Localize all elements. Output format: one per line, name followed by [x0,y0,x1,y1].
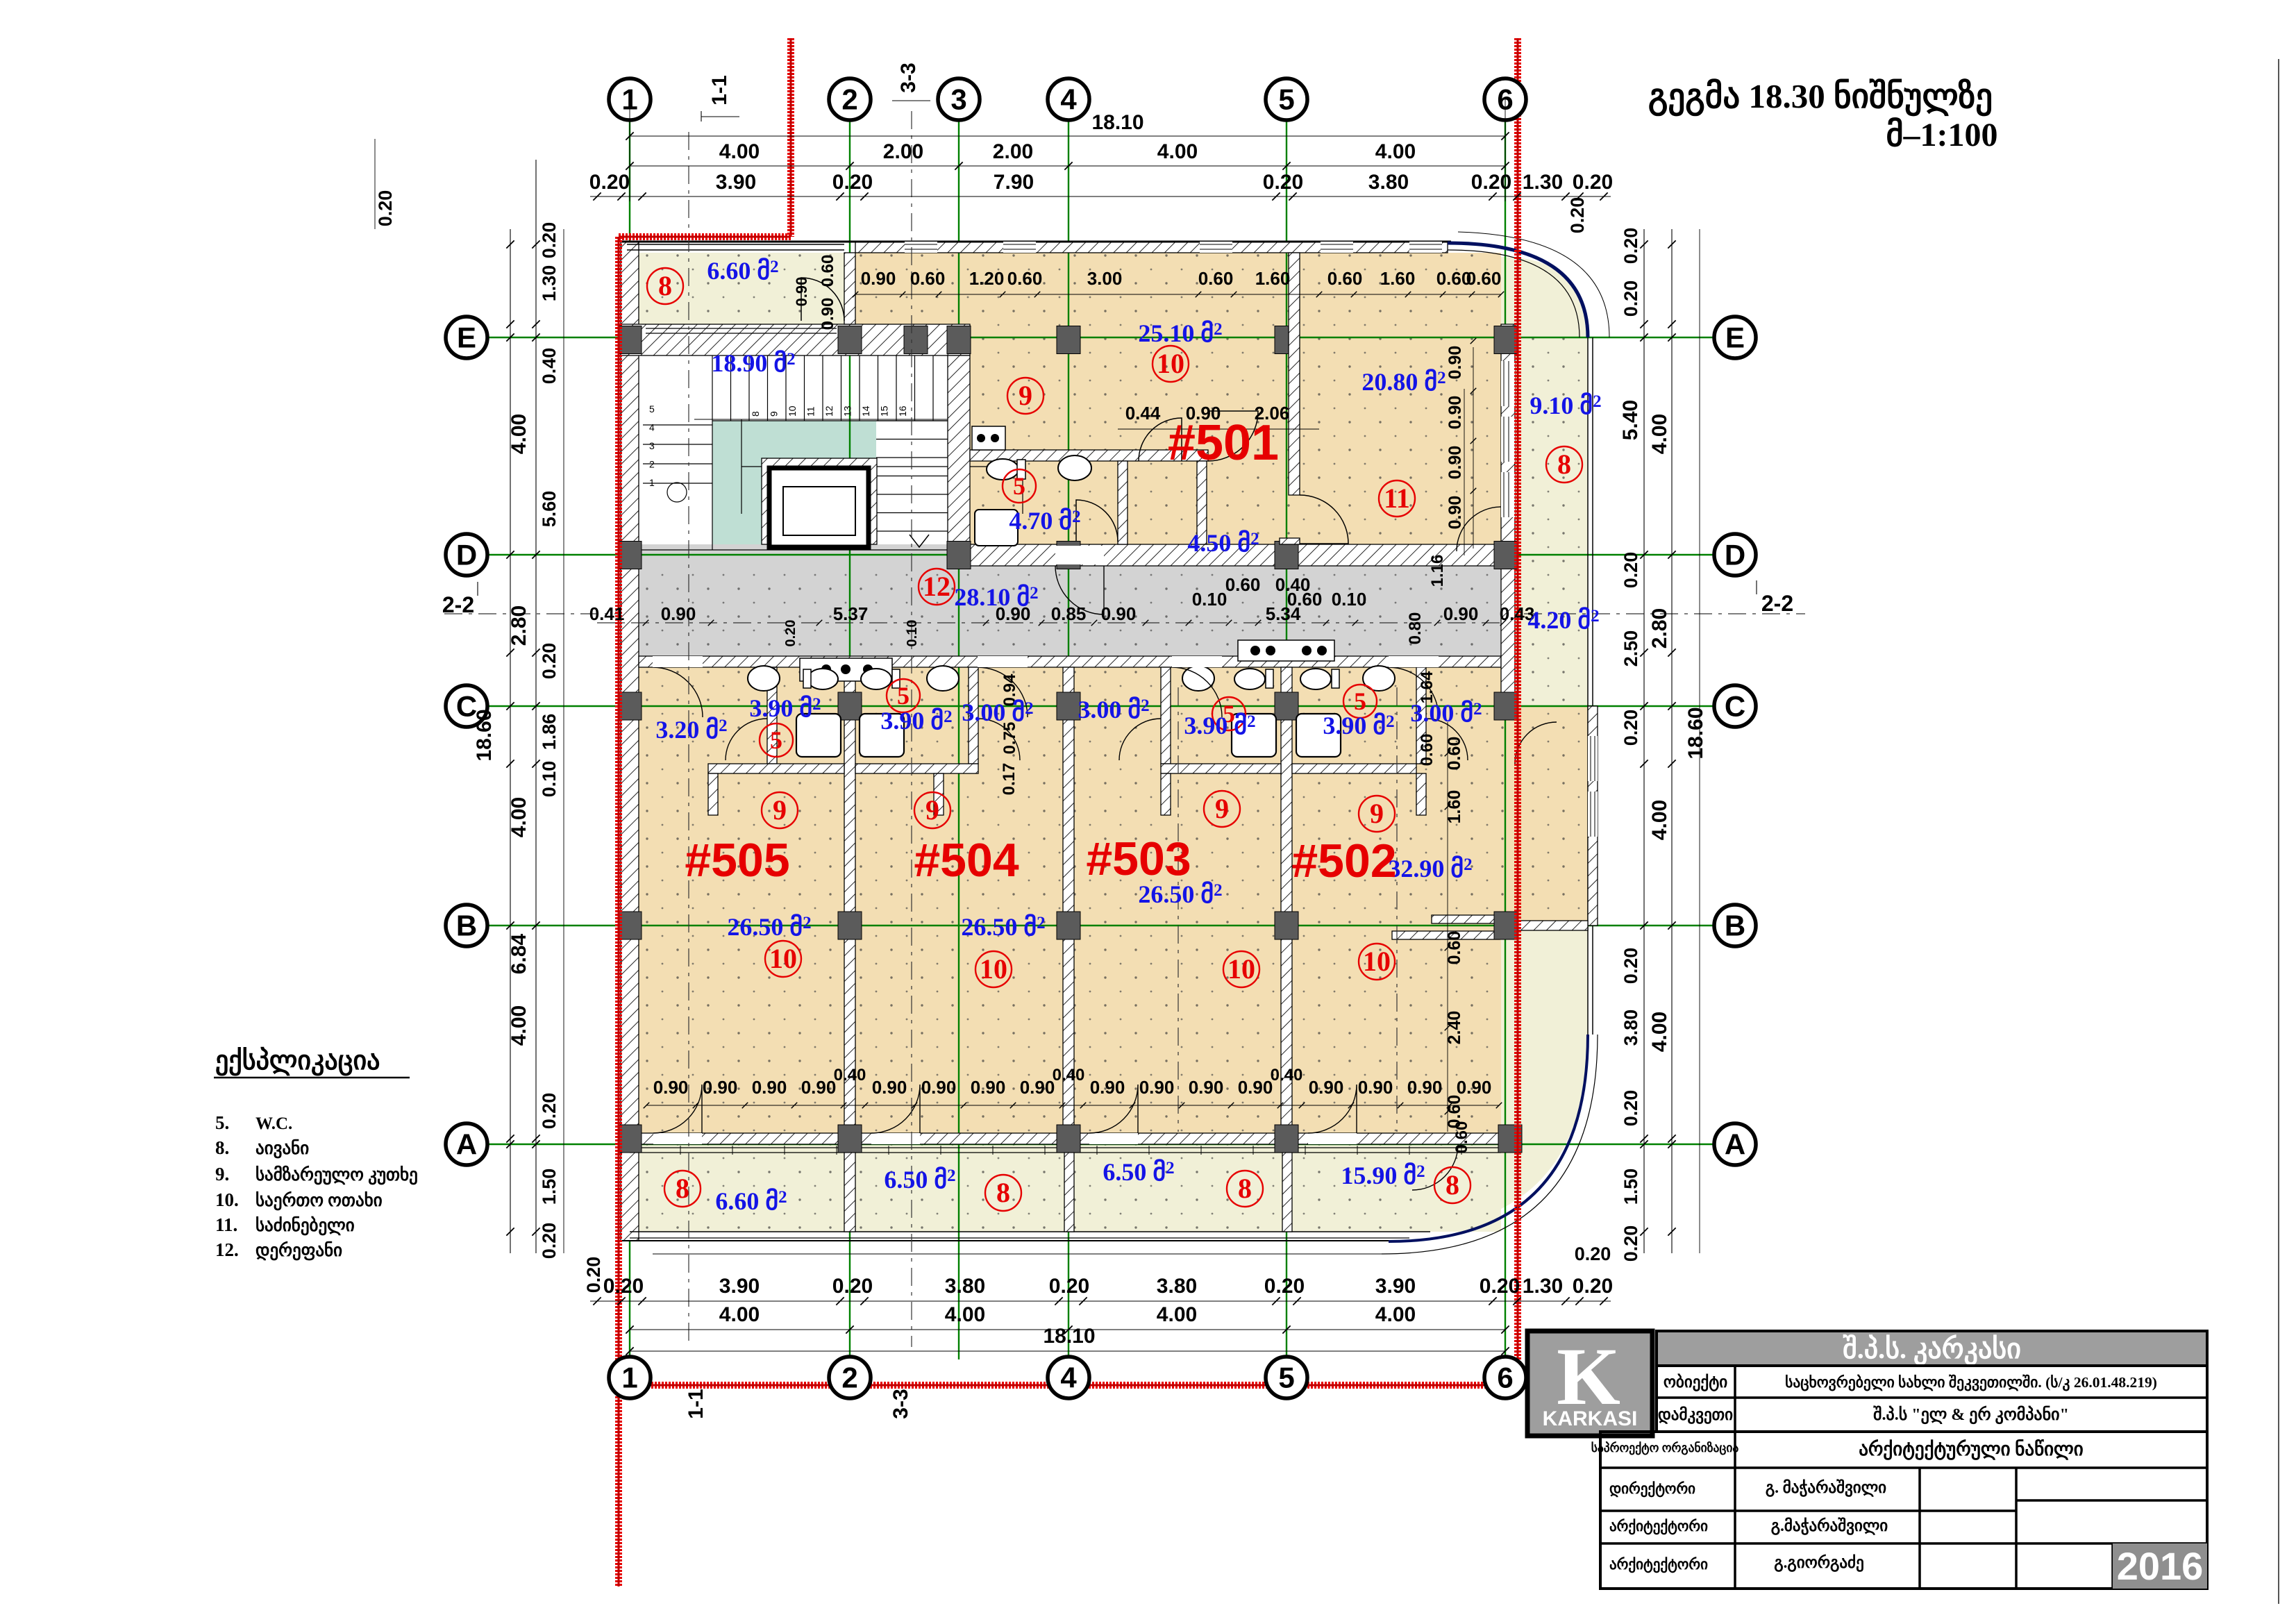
svg-text:9: 9 [1019,380,1032,411]
svg-text:3.80: 3.80 [1157,1275,1197,1298]
svg-text:9: 9 [769,411,780,417]
svg-text:0.90: 0.90 [661,603,696,624]
svg-text:0.40: 0.40 [1271,1066,1303,1085]
svg-text:4.00: 4.00 [1375,1303,1416,1326]
svg-text:0.90: 0.90 [1309,1077,1344,1098]
svg-text:3.00 მ2: 3.00 მ2 [1410,699,1482,727]
svg-text:#501: #501 [1168,415,1279,471]
svg-text:0.60: 0.60 [1225,574,1261,595]
svg-text:0.90: 0.90 [1446,346,1465,380]
svg-text:1.20: 1.20 [969,268,1005,289]
svg-text:საძინებელი: საძინებელი [255,1216,355,1236]
svg-text:18.60: 18.60 [1684,707,1707,759]
svg-text:#502: #502 [1291,835,1396,887]
svg-text:0.90: 0.90 [653,1077,689,1098]
svg-text:დირექტორი: დირექტორი [1609,1480,1695,1498]
svg-text:E: E [1725,321,1745,354]
svg-text:0.90: 0.90 [1446,396,1465,430]
svg-text:C: C [1725,690,1745,723]
svg-text:5: 5 [897,682,910,710]
svg-text:1: 1 [649,477,655,488]
svg-text:B: B [456,910,477,942]
svg-text:9: 9 [1215,793,1229,824]
svg-text:16: 16 [897,405,908,417]
svg-text:15.90 მ2: 15.90 მ2 [1341,1162,1425,1189]
svg-text:2-2: 2-2 [442,592,474,617]
svg-text:0.90: 0.90 [1238,1077,1273,1098]
svg-text:10: 10 [1157,348,1184,379]
svg-text:2: 2 [841,83,857,116]
svg-text:შ.პ.ს "ელ & ერ კომპანი": შ.პ.ს "ელ & ერ კომპანი" [1873,1405,2069,1425]
svg-text:1.86: 1.86 [539,714,560,751]
svg-text:3.90: 3.90 [716,171,756,194]
svg-text:დერეფანი: დერეფანი [255,1241,342,1261]
svg-text:10: 10 [1227,953,1255,985]
svg-text:9: 9 [1370,798,1384,829]
svg-text:0.20: 0.20 [1620,1225,1641,1262]
svg-text:0.60: 0.60 [1007,268,1043,289]
svg-text:10: 10 [787,405,798,417]
svg-text:12: 12 [923,571,950,602]
svg-text:0.44: 0.44 [1125,403,1161,424]
svg-text:0.20: 0.20 [1575,1244,1611,1264]
svg-text:0.20: 0.20 [603,1275,644,1298]
svg-text:5: 5 [1278,1362,1294,1394]
svg-text:0.90: 0.90 [793,277,810,307]
svg-text:0.90: 0.90 [1090,1077,1125,1098]
svg-text:KARKASI: KARKASI [1543,1407,1638,1430]
svg-text:5: 5 [1354,687,1366,715]
svg-text:7.90: 7.90 [994,171,1034,194]
svg-text:8: 8 [1238,1173,1252,1204]
svg-text:11: 11 [1384,483,1410,514]
svg-text:0.90: 0.90 [971,1077,1006,1098]
svg-text:საცხოვრებელი სახლი შეკვეთილში.: საცხოვრებელი სახლი შეკვეთილში. (ს/კ 26.0… [1785,1374,2157,1391]
svg-text:6.50 მ2: 6.50 მ2 [1103,1158,1174,1186]
svg-text:10: 10 [769,943,797,974]
svg-text:13: 13 [842,405,853,417]
svg-text:20.80 მ2: 20.80 მ2 [1361,368,1446,396]
svg-text:5: 5 [1013,472,1025,500]
svg-text:4: 4 [1060,83,1077,116]
svg-text:0.90: 0.90 [1358,1077,1393,1098]
svg-text:15: 15 [879,405,890,417]
svg-text:0.90: 0.90 [1457,1077,1492,1098]
svg-text:12: 12 [823,405,835,417]
svg-text:0.90: 0.90 [1446,446,1465,480]
svg-text:0.90: 0.90 [752,1077,787,1098]
svg-text:0.90: 0.90 [1407,1077,1443,1098]
svg-text:0.90: 0.90 [1101,603,1137,624]
svg-text:3.20 მ2: 3.20 მ2 [655,716,727,744]
svg-text:1-1: 1-1 [708,75,731,105]
svg-text:E: E [457,321,476,354]
svg-text:9.: 9. [215,1164,229,1184]
svg-text:10: 10 [1363,946,1391,977]
svg-text:12.: 12. [215,1239,239,1260]
svg-text:18.90 მ2: 18.90 მ2 [711,349,795,377]
svg-text:არქიტექტორი: არქიტექტორი [1609,1556,1708,1573]
svg-text:5: 5 [1278,83,1294,116]
svg-text:0.60: 0.60 [819,255,837,287]
svg-text:გ.გიორგაძე: გ.გიორგაძე [1774,1554,1864,1572]
svg-text:2-2: 2-2 [1761,591,1793,616]
svg-text:8: 8 [1446,1169,1459,1200]
svg-text:0.60: 0.60 [1452,1121,1471,1154]
svg-text:6.60 მ2: 6.60 მ2 [715,1187,787,1215]
svg-text:4.00: 4.00 [508,1005,530,1046]
svg-text:D: D [456,539,477,571]
svg-text:არქიტექტორი: არქიტექტორი [1609,1518,1708,1535]
svg-text:0.20: 0.20 [1620,228,1641,265]
svg-text:ობიექტი: ობიექტი [1664,1373,1727,1391]
svg-text:4: 4 [1060,1362,1077,1394]
svg-text:0.40: 0.40 [1275,574,1311,595]
svg-text:0.10: 0.10 [539,761,560,798]
svg-text:0.90: 0.90 [1139,1077,1175,1098]
svg-text:0.20: 0.20 [1620,948,1641,985]
svg-text:3.90 მ2: 3.90 მ2 [1184,712,1255,739]
svg-text:4: 4 [649,422,655,433]
svg-text:0.20: 0.20 [783,620,798,647]
svg-text:0.80: 0.80 [1406,612,1425,645]
svg-text:3.90: 3.90 [719,1275,760,1298]
svg-text:8: 8 [750,411,761,417]
svg-text:1.50: 1.50 [539,1169,560,1205]
svg-text:0.90: 0.90 [1189,1077,1224,1098]
svg-text:4.00: 4.00 [508,797,530,837]
svg-text:9: 9 [773,794,787,826]
svg-text:#503: #503 [1086,832,1191,885]
svg-text:2.50: 2.50 [1620,630,1641,667]
svg-text:8: 8 [996,1177,1010,1208]
svg-text:0.10: 0.10 [1332,589,1367,610]
svg-text:0.60: 0.60 [1418,734,1436,767]
svg-text:10: 10 [980,953,1007,985]
svg-text:1.60: 1.60 [1255,268,1291,289]
svg-text:აივანი: აივანი [255,1139,309,1159]
svg-text:18.60: 18.60 [473,709,496,761]
svg-text:#504: #504 [914,834,1019,887]
svg-text:დამკვეთი: დამკვეთი [1658,1406,1733,1424]
svg-text:3.90 მ2: 3.90 მ2 [1323,712,1394,739]
svg-text:18.10: 18.10 [1091,111,1143,134]
svg-text:3: 3 [649,440,655,451]
svg-text:8: 8 [676,1173,689,1204]
svg-text:0.60: 0.60 [1327,268,1363,289]
svg-text:32.90 მ2: 32.90 მ2 [1388,855,1472,882]
svg-text:4.00: 4.00 [1648,1012,1671,1052]
svg-text:2.80: 2.80 [1648,608,1671,648]
svg-text:0.41: 0.41 [589,603,625,624]
svg-text:3-3: 3-3 [897,62,920,92]
svg-text:0.20: 0.20 [539,1223,560,1259]
svg-text:1-1: 1-1 [685,1389,707,1418]
svg-text:5.: 5. [215,1112,229,1133]
svg-text:28.10 მ2: 28.10 მ2 [954,583,1038,611]
svg-text:0.20: 0.20 [1573,171,1613,194]
svg-text:1.30: 1.30 [539,265,560,302]
svg-text:4.00: 4.00 [945,1303,985,1326]
svg-text:4.50 მ2: 4.50 მ2 [1187,529,1259,557]
svg-text:არქიტექტურული ნაწილი: არქიტექტურული ნაწილი [1859,1439,2084,1460]
svg-text:1.60: 1.60 [1380,268,1416,289]
svg-text:0.40: 0.40 [539,348,560,385]
svg-text:D: D [1725,539,1745,571]
svg-text:4.00: 4.00 [1648,800,1671,840]
svg-text:0.90: 0.90 [1443,603,1479,624]
svg-text:3.90 მ2: 3.90 მ2 [749,694,821,722]
svg-text:0.20: 0.20 [832,171,873,194]
svg-text:3.90: 3.90 [1375,1275,1416,1298]
svg-text:გ.მაჭარაშვილი: გ.მაჭარაშვილი [1771,1517,1888,1535]
svg-text:4.70 მ2: 4.70 მ2 [1009,507,1080,535]
svg-text:0.20: 0.20 [539,643,560,680]
svg-text:26.50 მ2: 26.50 მ2 [961,913,1045,941]
svg-text:3.80: 3.80 [1368,171,1409,194]
svg-text:11: 11 [805,406,816,417]
svg-text:0.90: 0.90 [921,1077,957,1098]
svg-text:0.20: 0.20 [583,1257,604,1294]
svg-text:სამზარეულო კუთხე: სამზარეულო კუთხე [255,1165,418,1185]
svg-text:0.10: 0.10 [905,620,920,647]
svg-text:0.90: 0.90 [1020,1077,1055,1098]
svg-text:4.00: 4.00 [1648,414,1671,454]
svg-text:0.17: 0.17 [1000,763,1019,796]
svg-text:14: 14 [860,405,871,417]
svg-text:4.20 მ2: 4.20 მ2 [1527,606,1599,634]
svg-text:გ. მაჭარაშვილი: გ. მაჭარაშვილი [1766,1479,1886,1497]
svg-text:8: 8 [1557,449,1571,480]
svg-text:6.84: 6.84 [508,933,530,974]
svg-text:26.50 მ2: 26.50 მ2 [727,913,811,941]
svg-text:2.00: 2.00 [883,140,923,163]
svg-text:0.90: 0.90 [1446,496,1465,530]
svg-text:3.80: 3.80 [945,1275,985,1298]
svg-text:2: 2 [649,459,655,470]
svg-text:0.20: 0.20 [1620,1090,1641,1127]
svg-text:A: A [456,1128,477,1161]
svg-text:0.20: 0.20 [1620,710,1641,746]
svg-text:W.C.: W.C. [255,1114,292,1133]
svg-text:3.00: 3.00 [1087,268,1123,289]
svg-text:0.40: 0.40 [1053,1066,1085,1085]
svg-text:5.40: 5.40 [1619,400,1642,440]
svg-text:0.20: 0.20 [1471,171,1511,194]
svg-text:0.20: 0.20 [1264,1275,1305,1298]
svg-text:0.20: 0.20 [1480,1275,1520,1298]
svg-text:მ–1:100: მ–1:100 [1886,117,1997,153]
svg-text:5: 5 [770,726,782,754]
svg-text:0.20: 0.20 [375,190,396,227]
svg-text:გეგმა 18.30 ნიშნულზე: გეგმა 18.30 ნიშნულზე [1648,77,1993,117]
svg-text:4.00: 4.00 [1375,140,1416,163]
svg-text:3.80: 3.80 [1620,1010,1641,1046]
svg-text:2016: 2016 [2117,1544,2204,1588]
svg-text:3: 3 [950,83,966,116]
svg-text:5: 5 [649,403,655,415]
svg-text:0.40: 0.40 [834,1066,866,1085]
svg-text:3-3: 3-3 [889,1389,912,1418]
svg-text:11.: 11. [215,1214,237,1235]
svg-text:0.90: 0.90 [819,298,837,330]
svg-text:4.00: 4.00 [508,414,530,454]
svg-text:0.90: 0.90 [703,1077,738,1098]
svg-text:0.20: 0.20 [1567,197,1588,234]
svg-text:2.00: 2.00 [993,140,1033,163]
svg-text:შ.პ.ს. კარკასი: შ.პ.ს. კარკასი [1843,1333,2021,1366]
svg-text:B: B [1725,910,1745,942]
svg-text:0.20: 0.20 [1620,281,1641,317]
svg-text:0.90: 0.90 [861,268,896,289]
svg-text:9: 9 [925,794,939,826]
svg-text:0.20: 0.20 [589,171,630,194]
svg-text:0.20: 0.20 [1049,1275,1089,1298]
svg-text:0.20: 0.20 [539,1093,560,1130]
svg-text:1.30: 1.30 [1523,1275,1563,1298]
svg-text:0.60: 0.60 [910,268,946,289]
svg-text:0.60: 0.60 [1198,268,1234,289]
svg-text:6: 6 [1497,1362,1513,1394]
svg-text:3.00 მ2: 3.00 მ2 [962,698,1033,726]
svg-text:ექსპლიკაცია: ექსპლიკაცია [215,1046,380,1076]
svg-text:2.80: 2.80 [508,605,530,646]
svg-text:A: A [1725,1128,1745,1161]
svg-text:0.20: 0.20 [832,1275,873,1298]
svg-text:2: 2 [841,1362,857,1394]
svg-text:25.10 მ2: 25.10 მ2 [1138,319,1222,347]
svg-text:0.85: 0.85 [1051,603,1087,624]
svg-text:საპროექტო ორგანიზაცია: საპროექტო ორგანიზაცია [1591,1441,1739,1455]
svg-text:4.00: 4.00 [1157,140,1198,163]
svg-text:0.90: 0.90 [801,1077,837,1098]
svg-text:საერთო ოთახი: საერთო ოთახი [255,1191,383,1211]
svg-text:1: 1 [621,1362,637,1394]
svg-text:6.60 მ2: 6.60 მ2 [707,257,778,285]
svg-text:0.60: 0.60 [1466,268,1502,289]
svg-text:1.16: 1.16 [1428,555,1447,587]
svg-text:#505: #505 [685,834,789,887]
svg-text:0.20: 0.20 [1263,171,1303,194]
svg-text:8.: 8. [215,1137,229,1158]
svg-text:1.50: 1.50 [1620,1169,1641,1205]
svg-text:8: 8 [658,270,672,301]
svg-text:5.37: 5.37 [833,603,869,624]
svg-text:3.00 მ2: 3.00 მ2 [1078,696,1149,723]
svg-text:4.00: 4.00 [719,1303,760,1326]
svg-text:3.90 მ2: 3.90 მ2 [880,707,952,735]
svg-text:4.00: 4.00 [719,140,760,163]
svg-text:9.10 მ2: 9.10 მ2 [1530,392,1601,419]
svg-text:6.50 მ2: 6.50 მ2 [884,1166,955,1194]
svg-text:0.20: 0.20 [1573,1275,1613,1298]
svg-text:1.30: 1.30 [1523,171,1563,194]
svg-text:0.75: 0.75 [1000,722,1019,755]
svg-text:5.60: 5.60 [539,491,560,528]
svg-text:18.10: 18.10 [1043,1325,1095,1348]
svg-text:0.20: 0.20 [539,222,560,259]
svg-text:4.00: 4.00 [1157,1303,1197,1326]
svg-text:0.20: 0.20 [1620,552,1641,589]
svg-text:10.: 10. [215,1189,239,1210]
svg-text:0.90: 0.90 [872,1077,907,1098]
svg-text:0.10: 0.10 [1192,589,1227,610]
